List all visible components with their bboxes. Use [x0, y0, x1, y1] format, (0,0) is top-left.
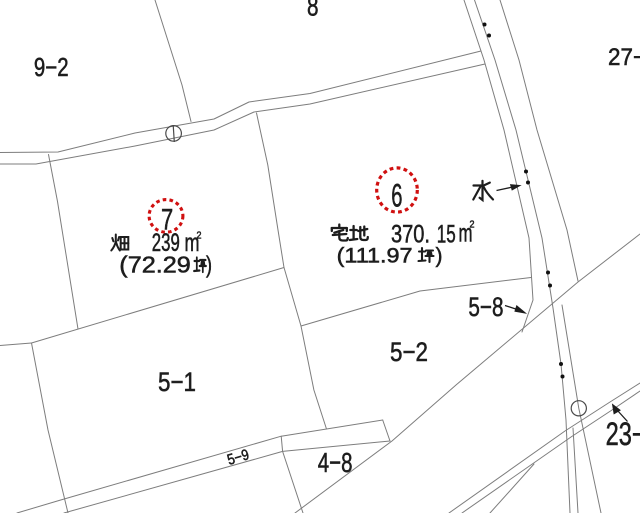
- svg-text:5−9: 5−9: [225, 446, 251, 469]
- svg-text:9−2: 9−2: [34, 52, 69, 82]
- svg-text:5−2: 5−2: [390, 337, 428, 367]
- svg-text:8: 8: [307, 0, 319, 22]
- svg-text:27−: 27−: [608, 44, 640, 71]
- svg-text:(111.97: (111.97: [337, 245, 413, 268]
- svg-text:2: 2: [197, 230, 202, 242]
- svg-text:23−: 23−: [606, 416, 640, 452]
- svg-text:): ): [206, 252, 212, 278]
- svg-text:(72.29: (72.29: [119, 252, 191, 278]
- svg-text:6: 6: [391, 177, 402, 213]
- svg-text:4−2: 4−2: [521, 508, 546, 513]
- svg-text:5−8: 5−8: [468, 292, 503, 322]
- svg-text:4−8: 4−8: [318, 447, 353, 478]
- svg-text:): ): [436, 245, 443, 268]
- svg-text:5−1: 5−1: [158, 367, 196, 397]
- svg-text:2: 2: [470, 220, 475, 231]
